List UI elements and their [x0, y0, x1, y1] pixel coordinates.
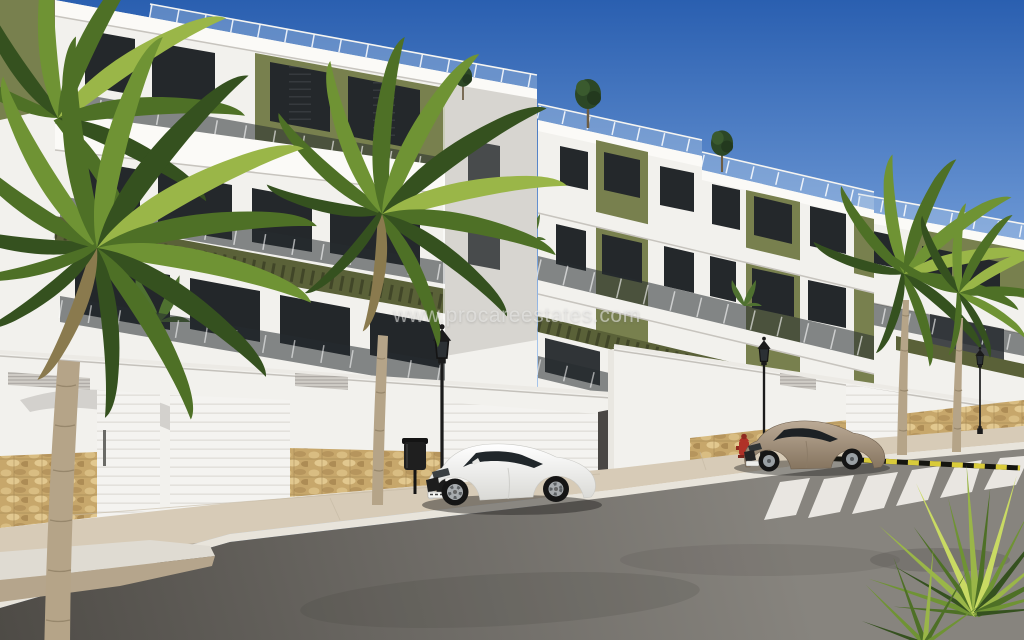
window [712, 184, 740, 230]
real-estate-render: www.procareestates.com [0, 0, 1024, 640]
window [664, 246, 694, 293]
window [604, 152, 640, 198]
window [710, 256, 736, 302]
window [810, 206, 846, 254]
grille [744, 450, 756, 462]
door-handle [103, 430, 106, 466]
license-plate [746, 461, 759, 466]
window [560, 146, 588, 190]
window [808, 280, 846, 328]
window [660, 166, 694, 212]
scene-canvas [0, 0, 1024, 640]
